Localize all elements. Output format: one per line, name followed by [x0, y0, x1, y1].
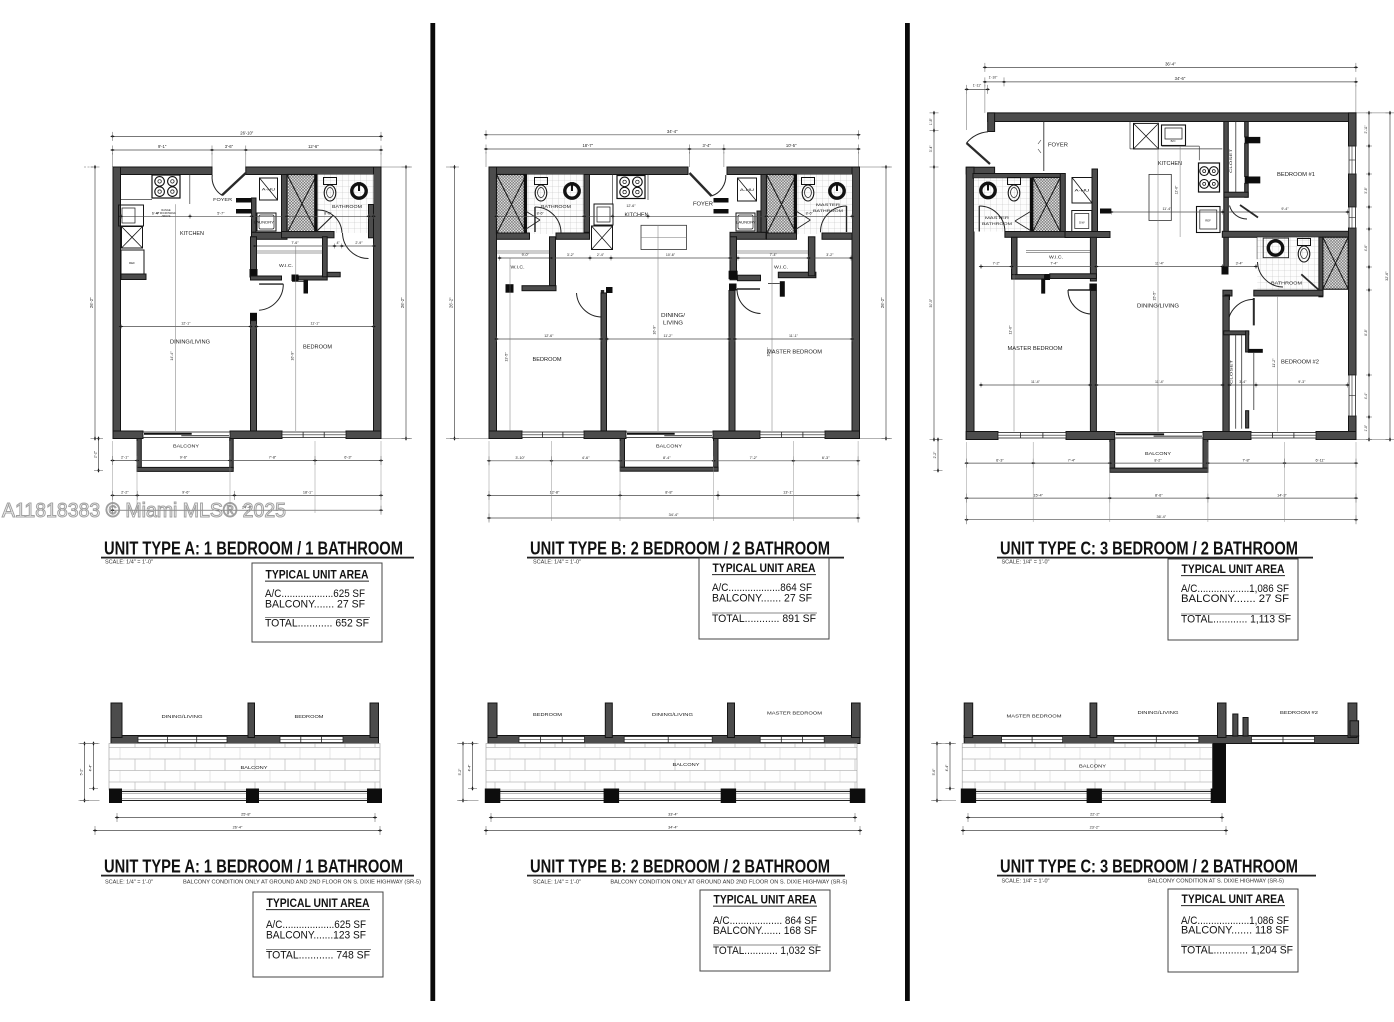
svg-text:8'-6": 8'-6" — [1155, 493, 1163, 497]
svg-text:9'-6": 9'-6" — [180, 456, 188, 460]
svg-text:UNIT TYPE B: 2 BEDROOM / 2 BAT: UNIT TYPE B: 2 BEDROOM / 2 BATHROOM — [530, 538, 830, 559]
svg-text:SCALE: 1/4" = 1'-0": SCALE: 1/4" = 1'-0" — [1002, 879, 1050, 885]
svg-text:8'-6": 8'-6" — [537, 212, 545, 216]
svg-text:BALCONY....... 27 SF: BALCONY....... 27 SF — [1181, 593, 1289, 605]
svg-text:BALCONY: BALCONY — [673, 762, 700, 767]
svg-text:KITCHEN: KITCHEN — [1158, 161, 1182, 167]
svg-text:BEDROOM #1: BEDROOM #1 — [1277, 172, 1315, 178]
svg-text:BALCONY CONDITION ONLY AT GROU: BALCONY CONDITION ONLY AT GROUND AND 2ND… — [183, 880, 421, 886]
svg-text:30'-5": 30'-5" — [929, 298, 933, 307]
svg-text:12'-6": 12'-6" — [626, 204, 636, 208]
svg-text:6'-3": 6'-3" — [344, 456, 352, 460]
svg-text:11'-2": 11'-2" — [1272, 358, 1276, 368]
svg-text:2'-9": 2'-9" — [355, 241, 363, 245]
svg-text:3'-6": 3'-6" — [225, 144, 234, 149]
svg-text:3'-4": 3'-4" — [1236, 262, 1244, 266]
svg-text:7'-8": 7'-8" — [1242, 458, 1250, 462]
svg-text:BATHROOM: BATHROOM — [332, 204, 363, 209]
svg-text:BALCONY....... 27 SF: BALCONY....... 27 SF — [712, 593, 812, 605]
svg-text:MASTER BEDROOM: MASTER BEDROOM — [1008, 346, 1063, 352]
svg-text:13'-5": 13'-5" — [505, 352, 509, 362]
svg-text:SCALE: 1/4" = 1'-0": SCALE: 1/4" = 1'-0" — [1002, 560, 1050, 566]
svg-text:LAUNDRY: LAUNDRY — [736, 221, 757, 225]
svg-text:FOYER: FOYER — [693, 202, 713, 208]
svg-text:4'-4": 4'-4" — [945, 764, 949, 772]
svg-text:8'-4": 8'-4" — [663, 456, 671, 460]
svg-text:W.I.C.: W.I.C. — [511, 265, 525, 270]
svg-text:SCALE: 1/4" = 1'-0": SCALE: 1/4" = 1'-0" — [533, 880, 581, 886]
svg-text:12'-6": 12'-6" — [308, 144, 319, 149]
svg-text:TYPICAL UNIT AREA: TYPICAL UNIT AREA — [267, 896, 370, 910]
svg-text:33'-4": 33'-4" — [668, 813, 678, 817]
svg-text:BEDROOM: BEDROOM — [533, 712, 562, 717]
svg-text:KITCHEN: KITCHEN — [625, 213, 649, 219]
svg-text:10'-6": 10'-6" — [666, 253, 676, 257]
svg-text:B/O: B/O — [1171, 139, 1177, 143]
svg-text:BEDROOM: BEDROOM — [303, 345, 332, 351]
svg-text:34'-4": 34'-4" — [669, 513, 679, 517]
svg-text:FOYER: FOYER — [213, 197, 233, 202]
svg-text:5'-2": 5'-2" — [80, 768, 84, 776]
svg-text:26'-2": 26'-2" — [449, 297, 454, 308]
svg-text:12'-1": 12'-1" — [181, 322, 191, 326]
svg-text:BALCONY: BALCONY — [656, 444, 682, 449]
svg-text:6'-3": 6'-3" — [996, 458, 1004, 462]
svg-text:23'-2": 23'-2" — [1090, 826, 1100, 830]
svg-text:TYPICAL UNIT AREA: TYPICAL UNIT AREA — [1182, 892, 1285, 906]
svg-text:BATHROOM: BATHROOM — [982, 221, 1012, 226]
svg-text:TOTAL............ 1,032 SF: TOTAL............ 1,032 SF — [713, 945, 821, 957]
svg-text:2'-2": 2'-2" — [94, 450, 98, 458]
svg-text:5'-2": 5'-2" — [458, 768, 462, 776]
svg-text:CLOSET: CLOSET — [1229, 148, 1233, 173]
svg-text:9'-6": 9'-6" — [182, 491, 190, 495]
svg-text:LIVING: LIVING — [663, 321, 683, 327]
svg-text:TOTAL............ 1,113 SF: TOTAL............ 1,113 SF — [1181, 614, 1291, 626]
svg-text:SCALE: 1/4" = 1'-0": SCALE: 1/4" = 1'-0" — [105, 880, 153, 886]
svg-text:DINING/LIVING: DINING/LIVING — [652, 712, 694, 717]
svg-text:BALCONY: BALCONY — [173, 444, 199, 449]
svg-text:MASTER: MASTER — [816, 202, 840, 207]
svg-text:4'-6": 4'-6" — [582, 456, 590, 460]
svg-text:6'-11": 6'-11" — [1316, 458, 1326, 462]
svg-text:3'-4": 3'-4" — [1239, 380, 1247, 384]
svg-text:2'-2": 2'-2" — [933, 451, 937, 459]
svg-text:13'-1": 13'-1" — [783, 491, 793, 495]
svg-text:BALCONY: BALCONY — [1079, 764, 1106, 769]
svg-text:11'-4": 11'-4" — [1162, 207, 1172, 211]
svg-text:11'-2": 11'-2" — [664, 334, 674, 338]
svg-text:3'-10": 3'-10" — [515, 456, 525, 460]
svg-text:22'-2": 22'-2" — [1090, 813, 1100, 817]
svg-text:SCALE: 1/4" = 1'-0": SCALE: 1/4" = 1'-0" — [533, 560, 581, 566]
svg-text:REF: REF — [1205, 219, 1211, 223]
svg-text:4'-4": 4'-4" — [468, 764, 472, 772]
svg-text:A-HU: A-HU — [1075, 189, 1091, 193]
svg-text:26'-2": 26'-2" — [400, 297, 405, 308]
svg-text:16'-9": 16'-9" — [653, 325, 657, 335]
svg-text:BATHROOM: BATHROOM — [813, 208, 843, 213]
svg-text:26'-2": 26'-2" — [880, 297, 885, 308]
svg-text:8'-6": 8'-6" — [806, 212, 814, 216]
svg-text:11'-6": 11'-6" — [1009, 325, 1013, 335]
svg-text:BALCONY....... 168 SF: BALCONY....... 168 SF — [713, 925, 817, 937]
svg-text:UNIT TYPE A: 1 BEDROOM / 1 BAT: UNIT TYPE A: 1 BEDROOM / 1 BATHROOM — [104, 538, 403, 559]
svg-text:9'-4": 9'-4" — [1281, 207, 1289, 211]
svg-text:7'-4": 7'-4" — [770, 253, 778, 257]
svg-text:25'-8": 25'-8" — [241, 813, 251, 817]
svg-text:6'-3": 6'-3" — [822, 456, 830, 460]
svg-text:14'-3": 14'-3" — [1277, 493, 1287, 497]
svg-text:7'-2": 7'-2" — [750, 456, 758, 460]
svg-text:LAUNDRY: LAUNDRY — [254, 221, 275, 225]
svg-text:MASTER BEDROOM: MASTER BEDROOM — [767, 350, 822, 356]
svg-text:34'-4": 34'-4" — [668, 826, 678, 830]
svg-text:3'-8": 3'-8" — [1364, 186, 1368, 193]
svg-text:DINING/: DINING/ — [661, 313, 686, 319]
svg-text:1'-8": 1'-8" — [1364, 424, 1368, 431]
svg-text:4'-6": 4'-6" — [1364, 244, 1368, 251]
svg-text:TYPICAL UNIT AREA: TYPICAL UNIT AREA — [1182, 562, 1285, 576]
svg-text:1'-10": 1'-10" — [989, 76, 998, 80]
svg-text:32'-6": 32'-6" — [1385, 271, 1389, 281]
svg-text:BALCONY: BALCONY — [1145, 451, 1171, 456]
svg-text:9'-1": 9'-1" — [158, 144, 167, 149]
svg-text:4'-4": 4'-4" — [1364, 392, 1368, 399]
svg-text:BEDROOM: BEDROOM — [533, 357, 562, 363]
svg-text:12'-6": 12'-6" — [544, 334, 554, 338]
svg-text:UNIT TYPE A: 1 BEDROOM / 1 BAT: UNIT TYPE A: 1 BEDROOM / 1 BATHROOM — [104, 856, 403, 877]
svg-text:9'-0": 9'-0" — [522, 253, 530, 257]
svg-text:5'-7": 5'-7" — [217, 212, 225, 216]
svg-text:7'-8": 7'-8" — [269, 456, 277, 460]
svg-text:A-HU: A-HU — [262, 187, 276, 191]
svg-text:10'-5": 10'-5" — [786, 143, 797, 148]
svg-text:CLOSET: CLOSET — [1230, 359, 1234, 384]
svg-text:KITCHEN: KITCHEN — [180, 231, 204, 237]
svg-text:MASTER: MASTER — [985, 215, 1009, 220]
svg-text:3'-2": 3'-2" — [567, 253, 575, 257]
svg-text:12'-6": 12'-6" — [1175, 185, 1179, 194]
svg-text:7'-4": 7'-4" — [1050, 262, 1058, 266]
svg-text:A-HU: A-HU — [740, 188, 755, 192]
svg-text:UNIT TYPE B: 2 BEDROOM / 2 BAT: UNIT TYPE B: 2 BEDROOM / 2 BATHROOM — [530, 856, 830, 877]
svg-text:TYPICAL UNIT AREA: TYPICAL UNIT AREA — [713, 561, 816, 575]
svg-text:MASTER BEDROOM: MASTER BEDROOM — [1007, 714, 1062, 719]
svg-text:16'-9": 16'-9" — [290, 351, 294, 361]
svg-text:MASTER BEDROOM: MASTER BEDROOM — [767, 711, 822, 716]
svg-text:15'-4": 15'-4" — [1033, 493, 1043, 497]
svg-text:REF: REF — [129, 261, 135, 265]
svg-text:7'-6": 7'-6" — [291, 241, 299, 245]
svg-text:36'-4": 36'-4" — [1165, 62, 1176, 67]
svg-text:1'-11": 1'-11" — [973, 83, 982, 87]
svg-text:2'-4": 2'-4" — [597, 253, 605, 257]
svg-text:34'-4": 34'-4" — [667, 129, 678, 134]
svg-text:11'-1": 11'-1" — [789, 334, 799, 338]
svg-text:BEDROOM: BEDROOM — [295, 714, 324, 719]
svg-text:8'-8": 8'-8" — [665, 491, 673, 495]
svg-text:UNIT TYPE C: 3 BEDROOM / 2 BAT: UNIT TYPE C: 3 BEDROOM / 2 BATHROOM — [1000, 538, 1298, 559]
svg-text:TOTAL............ 652 SF: TOTAL............ 652 SF — [265, 618, 369, 630]
svg-text:15'-5": 15'-5" — [1153, 291, 1157, 301]
svg-text:TOTAL............ 748 SF: TOTAL............ 748 SF — [266, 950, 370, 962]
svg-text:BATHROOM: BATHROOM — [541, 204, 572, 209]
svg-text:14'-4": 14'-4" — [170, 351, 174, 361]
svg-text:FOYER: FOYER — [1048, 143, 1068, 149]
svg-text:UNIT TYPE C: 3 BEDROOM / 2 BAT: UNIT TYPE C: 3 BEDROOM / 2 BATHROOM — [1000, 856, 1298, 877]
svg-text:SCALE: 1/4" = 1'-0": SCALE: 1/4" = 1'-0" — [105, 560, 153, 566]
svg-text:9'-3": 9'-3" — [1298, 380, 1306, 384]
svg-text:26'-10": 26'-10" — [240, 131, 254, 136]
svg-text:BALCONY CONDITION ONLY AT GROU: BALCONY CONDITION ONLY AT GROUND AND 2ND… — [610, 880, 847, 886]
svg-text:36'-4": 36'-4" — [1156, 515, 1166, 519]
svg-text:TYPICAL UNIT AREA: TYPICAL UNIT AREA — [266, 568, 369, 582]
svg-text:DINING/LIVING: DINING/LIVING — [1138, 710, 1180, 715]
svg-text:11'-4": 11'-4" — [1155, 262, 1165, 266]
svg-text:2'-2": 2'-2" — [121, 491, 129, 495]
svg-text:3'-2": 3'-2" — [826, 253, 834, 257]
svg-text:TOTAL............ 891 SF: TOTAL............ 891 SF — [712, 613, 816, 625]
svg-text:7'-2": 7'-2" — [993, 262, 1001, 266]
svg-text:BATHROOM: BATHROOM — [1271, 281, 1303, 286]
svg-text:26'-4": 26'-4" — [233, 826, 243, 830]
svg-text:BEDROOM #2: BEDROOM #2 — [1281, 360, 1319, 366]
svg-text:2'-1": 2'-1" — [121, 456, 129, 460]
svg-text:5'-6": 5'-6" — [932, 768, 936, 776]
svg-text:26'-2": 26'-2" — [89, 297, 94, 308]
svg-text:BALCONY....... 118 SF: BALCONY....... 118 SF — [1181, 925, 1289, 937]
svg-text:W.I.C.: W.I.C. — [774, 265, 788, 270]
svg-text:BALCONY CONDITION AT S. DIXIE: BALCONY CONDITION AT S. DIXIE HIGHWAY (S… — [1148, 879, 1284, 885]
svg-text:BALCONY.......123 SF: BALCONY.......123 SF — [266, 930, 366, 942]
svg-text:BEDROOM #2: BEDROOM #2 — [1280, 710, 1319, 715]
svg-text:TYPICAL UNIT AREA: TYPICAL UNIT AREA — [714, 893, 817, 907]
svg-text:34'-6": 34'-6" — [1175, 76, 1186, 81]
svg-text:11'-1": 11'-1" — [311, 322, 321, 326]
svg-text:3'-4": 3'-4" — [929, 145, 933, 153]
svg-text:6'-4": 6'-4" — [152, 212, 160, 216]
svg-text:2'-11": 2'-11" — [1364, 124, 1368, 133]
svg-text:8'-2": 8'-2" — [1154, 459, 1162, 463]
svg-text:18'-7": 18'-7" — [582, 143, 593, 148]
svg-text:D/W: D/W — [1079, 221, 1085, 225]
svg-text:4'-4": 4'-4" — [89, 764, 93, 772]
svg-text:W.I.C.: W.I.C. — [279, 263, 293, 268]
svg-text:DINING/LIVING: DINING/LIVING — [162, 714, 204, 719]
svg-text:8'-6": 8'-6" — [324, 212, 332, 216]
svg-text:BALCONY: BALCONY — [241, 765, 268, 770]
svg-text:11'-4": 11'-4" — [1031, 380, 1041, 384]
svg-text:DINING/LIVING: DINING/LIVING — [170, 340, 210, 346]
svg-text:W.I.C.: W.I.C. — [1049, 255, 1063, 260]
svg-text:1'-8": 1'-8" — [929, 118, 933, 126]
svg-text:A11818383 © Miami MLS® 2025: A11818383 © Miami MLS® 2025 — [2, 499, 286, 522]
svg-text:7'-4": 7'-4" — [1068, 458, 1076, 462]
svg-text:8'-8": 8'-8" — [1364, 328, 1368, 335]
svg-text:18'-1": 18'-1" — [303, 491, 313, 495]
svg-text:BALCONY....... 27 SF: BALCONY....... 27 SF — [265, 599, 365, 611]
svg-text:11'-4": 11'-4" — [1155, 380, 1165, 384]
svg-text:3'-4": 3'-4" — [703, 143, 712, 148]
svg-text:TOTAL............ 1,204 SF: TOTAL............ 1,204 SF — [1181, 945, 1293, 957]
